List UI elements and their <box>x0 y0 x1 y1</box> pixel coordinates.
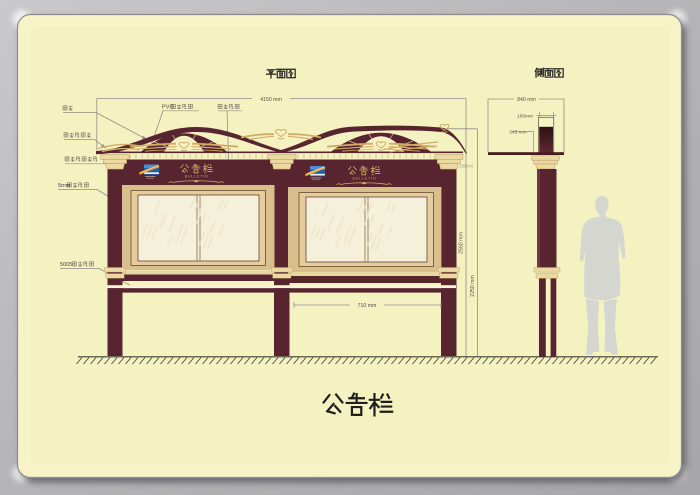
svg-text:710 mm: 710 mm <box>358 303 377 309</box>
svg-text:4150 mm: 4150 mm <box>260 97 282 103</box>
svg-text:840 mm: 840 mm <box>517 97 536 103</box>
svg-text:2560 mm: 2560 mm <box>459 232 465 254</box>
svg-text:150mm: 150mm <box>459 164 473 169</box>
svg-text:245 mm: 245 mm <box>509 129 526 135</box>
svg-text:PVC: PVC <box>162 105 174 111</box>
svg-text:BULLETIN: BULLETIN <box>185 175 209 179</box>
svg-text:2250 mm: 2250 mm <box>470 275 476 297</box>
svg-text:5005: 5005 <box>60 262 72 268</box>
svg-text:165mm: 165mm <box>517 113 533 119</box>
svg-text:BULLETIN: BULLETIN <box>353 177 377 181</box>
svg-text:5mm: 5mm <box>58 183 71 189</box>
